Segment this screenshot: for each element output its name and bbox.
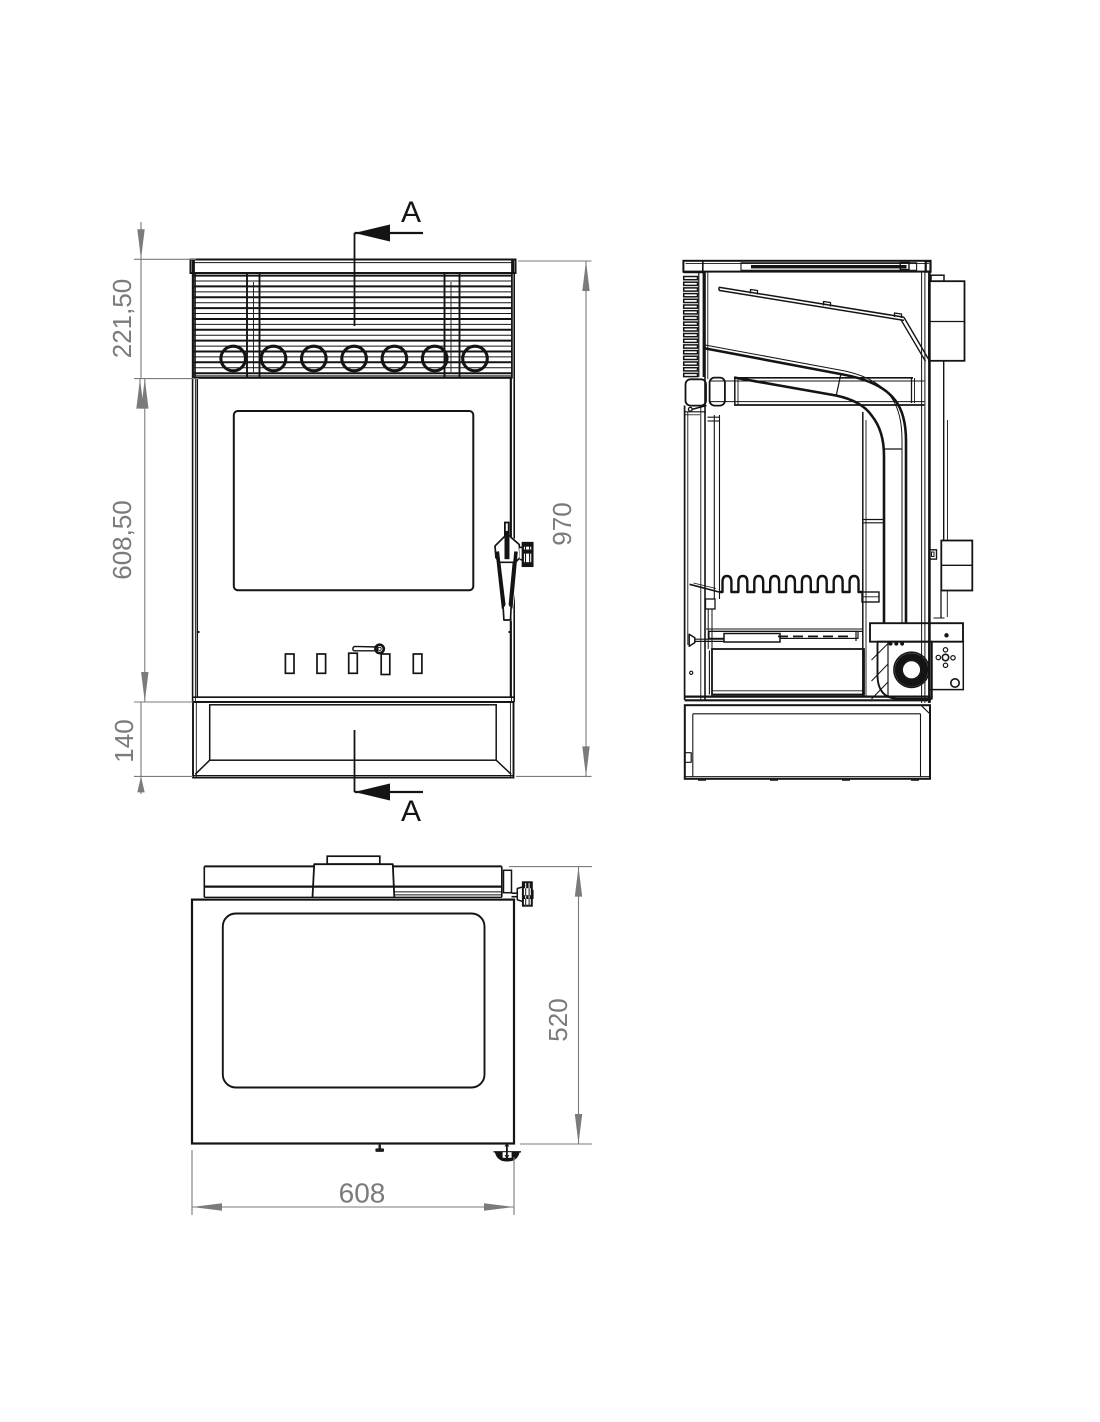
svg-text:970: 970 bbox=[547, 502, 577, 545]
svg-text:140: 140 bbox=[109, 719, 139, 762]
svg-text:608: 608 bbox=[339, 1178, 386, 1209]
svg-text:520: 520 bbox=[543, 998, 573, 1041]
svg-text:A: A bbox=[401, 795, 421, 828]
svg-text:A: A bbox=[401, 196, 421, 229]
svg-text:608,50: 608,50 bbox=[107, 500, 137, 580]
svg-text:221,50: 221,50 bbox=[107, 279, 137, 359]
